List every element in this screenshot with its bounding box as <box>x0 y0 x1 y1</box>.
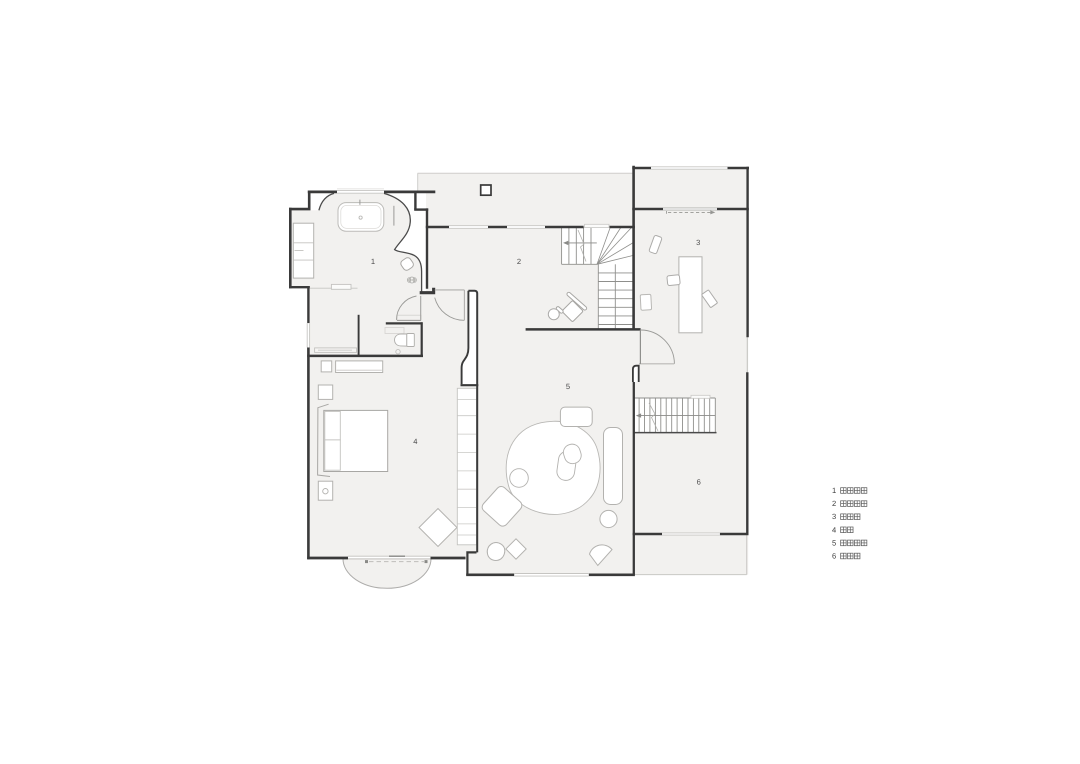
svg-text:1: 1 <box>832 486 836 495</box>
svg-text:2: 2 <box>517 257 521 266</box>
svg-text:6: 6 <box>697 478 701 487</box>
svg-text:1: 1 <box>371 257 375 266</box>
svg-text:6: 6 <box>832 552 836 561</box>
svg-text:4: 4 <box>832 525 836 534</box>
svg-text:3: 3 <box>832 512 836 521</box>
svg-text:3: 3 <box>696 238 700 247</box>
svg-text:4: 4 <box>413 437 417 446</box>
svg-text:5: 5 <box>566 382 570 391</box>
svg-text:5: 5 <box>832 538 836 547</box>
svg-text:2: 2 <box>832 499 836 508</box>
